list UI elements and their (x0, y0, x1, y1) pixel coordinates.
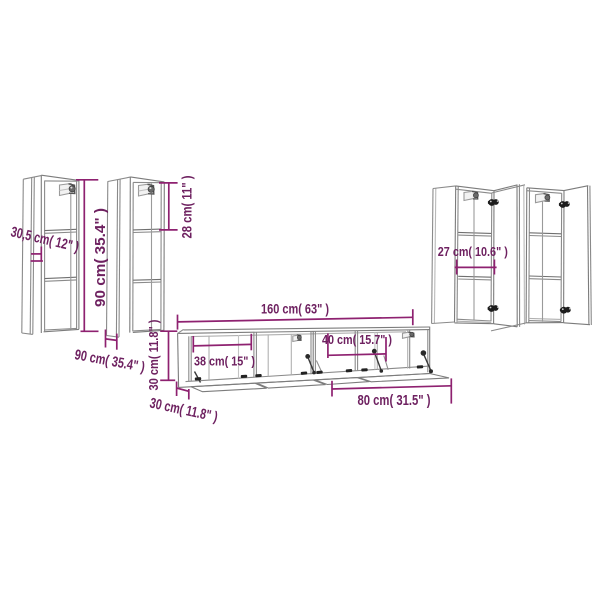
svg-text:30 cm( 11.8" ): 30 cm( 11.8" ) (146, 320, 161, 391)
svg-text:90 cm( 35.4" ): 90 cm( 35.4" ) (92, 208, 109, 307)
svg-text:40 cm( 15.7" ): 40 cm( 15.7" ) (322, 332, 392, 347)
svg-text:38 cm( 15" ): 38 cm( 15" ) (194, 354, 255, 369)
svg-text:80 cm( 31.5" ): 80 cm( 31.5" ) (358, 393, 431, 409)
svg-text:28 cm( 11" ): 28 cm( 11" ) (179, 176, 195, 239)
svg-text:27 cm( 10.6" ): 27 cm( 10.6" ) (438, 244, 508, 259)
svg-text:160 cm( 63" ): 160 cm( 63" ) (261, 302, 329, 317)
